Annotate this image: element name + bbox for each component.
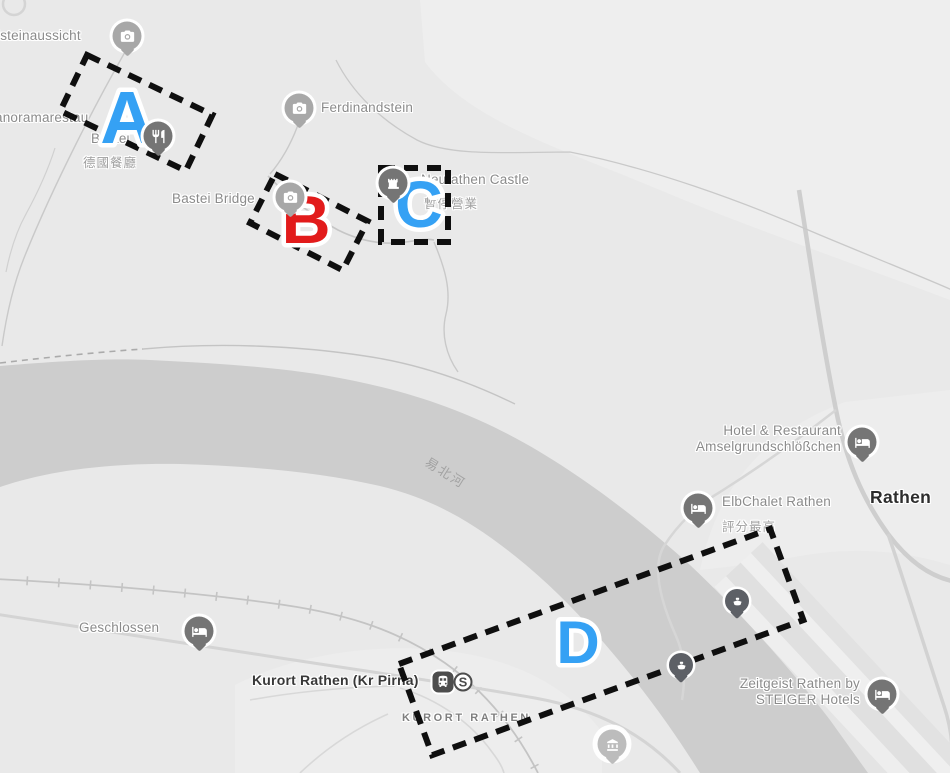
hotel-pin-amselgrund[interactable] — [848, 428, 877, 457]
camera-icon — [291, 100, 307, 116]
label-kurort-locality: KURORT RATHEN — [402, 712, 531, 724]
restaurant-pin-bastei[interactable] — [144, 122, 173, 151]
label-zeitgeist-line2: STEIGER Hotels — [740, 692, 860, 707]
label-elbchalet-rating: 評分最高 — [722, 516, 776, 535]
label-neurathen-castle[interactable]: Neurathen Castle — [421, 172, 529, 187]
ferry-pin-2[interactable] — [669, 653, 693, 677]
sbahn-letter: S — [459, 675, 468, 690]
label-kurort-station[interactable]: Kurort Rathen (Kr Pirna) — [252, 672, 419, 688]
ferry-pin-1[interactable] — [725, 589, 749, 613]
label-rathen-town: Rathen — [870, 487, 931, 508]
bed-icon — [874, 686, 890, 702]
viewpoint-pin-aussicht[interactable] — [113, 22, 142, 51]
label-amselgrund-line2: Amselgrundschlößchen — [696, 439, 841, 454]
label-ferdinandstein[interactable]: Ferdinandstein — [321, 100, 413, 115]
label-bastei[interactable]: Bastei — [91, 131, 130, 146]
label-elbchalet[interactable]: ElbChalet Rathen — [722, 494, 831, 509]
map-canvas[interactable] — [0, 0, 950, 773]
camera-icon — [282, 189, 298, 205]
castle-pin-neurathen[interactable] — [379, 169, 408, 198]
train-icon — [436, 675, 451, 690]
map[interactable]: S lsteinaussicht anoramarestau Bastei 德國… — [0, 0, 950, 773]
hotel-pin-elbchalet[interactable] — [684, 494, 713, 523]
hotel-pin-zeitgeist[interactable] — [868, 680, 897, 709]
hotel-pin-geschlossen[interactable] — [185, 617, 214, 646]
label-geschlossen[interactable]: Geschlossen — [79, 620, 159, 635]
label-zeitgeist[interactable]: Zeitgeist Rathen by STEIGER Hotels — [740, 676, 860, 707]
label-panoramarestaurant[interactable]: anoramarestau — [0, 110, 88, 125]
camera-icon — [119, 28, 135, 44]
label-zeitgeist-line1: Zeitgeist Rathen by — [740, 676, 860, 691]
label-viewpoint[interactable]: lsteinaussicht — [0, 28, 81, 43]
label-amselgrund-line1: Hotel & Restaurant — [723, 423, 841, 438]
castle-icon — [385, 175, 401, 191]
museum-icon — [604, 736, 620, 752]
bed-icon — [854, 434, 870, 450]
ferry-icon — [731, 595, 744, 608]
label-bastei-bridge[interactable]: Bastei Bridge — [172, 191, 255, 206]
label-neurathen-status: 暫停營業 — [424, 193, 478, 212]
museum-pin[interactable] — [598, 730, 627, 759]
label-amselgrund[interactable]: Hotel & Restaurant Amselgrundschlößchen — [696, 423, 841, 454]
sbahn-icon[interactable]: S — [454, 673, 473, 692]
restaurant-icon — [150, 128, 166, 144]
train-station-icon[interactable] — [433, 672, 454, 693]
bed-icon — [191, 623, 207, 639]
bed-icon — [690, 500, 706, 516]
ferry-icon — [675, 659, 688, 672]
label-bastei-zh: 德國餐廳 — [83, 152, 137, 171]
viewpoint-pin-ferdinandstein[interactable] — [285, 94, 314, 123]
viewpoint-pin-bridge[interactable] — [276, 183, 305, 212]
